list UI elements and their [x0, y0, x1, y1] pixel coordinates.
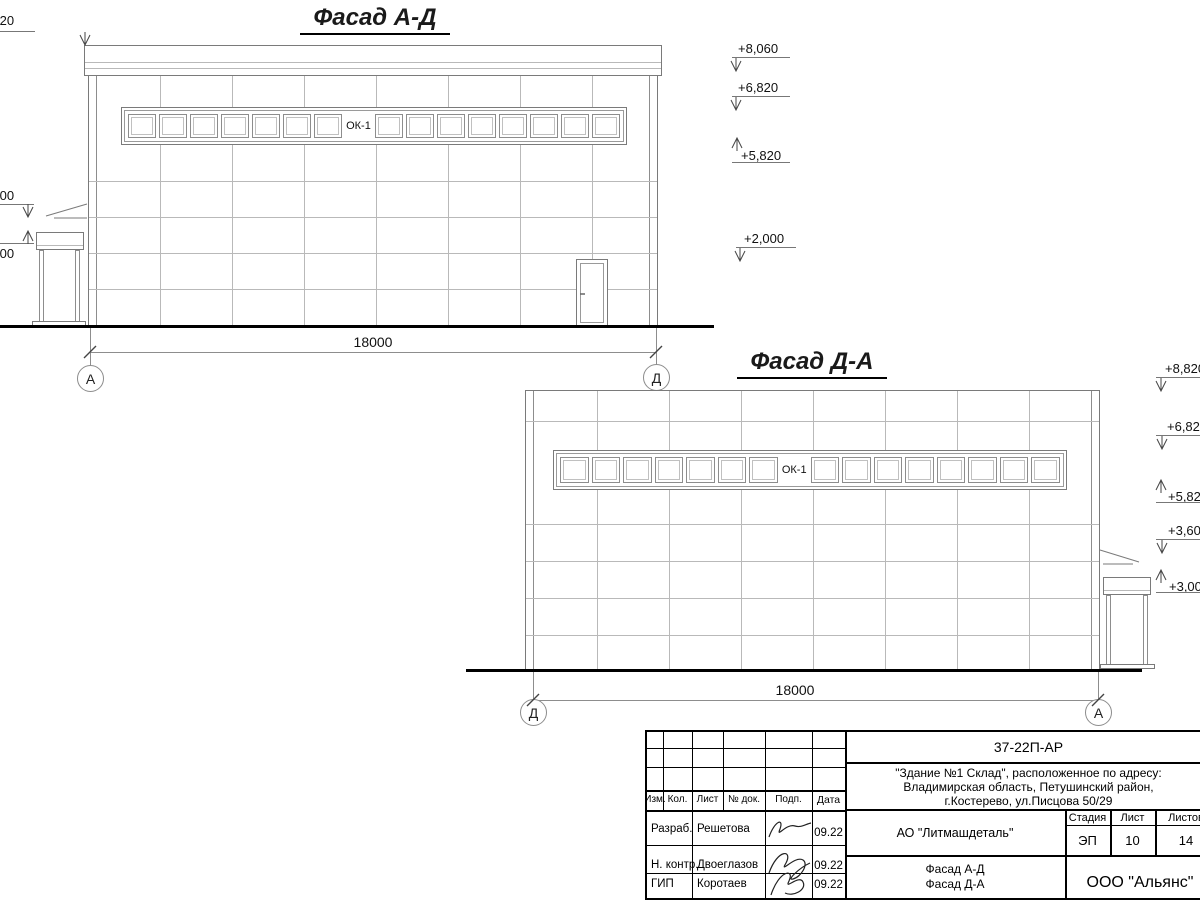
- elevation-mark-da-0: +8,820: [1165, 361, 1200, 376]
- sheet-value: 10: [1110, 833, 1155, 848]
- window-cell: [686, 457, 715, 483]
- col-kol: Кол.: [664, 794, 691, 805]
- title-block: Изм. Кол. Лист № док. Подп. Дата Разраб.…: [645, 730, 1200, 900]
- window-cell: [561, 114, 589, 138]
- elevation-mark-da-3: +3,600: [1168, 523, 1200, 538]
- window-band-ok1: ОК-1: [553, 450, 1067, 490]
- drawing-sheet: Фасад А-Д: [0, 0, 1200, 900]
- elevation-mark-right-0: +8,060: [738, 41, 778, 56]
- parapet-band: [84, 45, 662, 76]
- window-cell: [190, 114, 218, 138]
- window-mark-label: ОК-1: [781, 457, 808, 483]
- window-cell: [314, 114, 342, 138]
- dimension-value: 18000: [755, 682, 835, 698]
- sheet-name-line2: Фасад Д-А: [845, 877, 1065, 891]
- window-cell: [375, 114, 403, 138]
- window-cell: [937, 457, 966, 483]
- window-cell: [159, 114, 187, 138]
- role-gip: ГИП: [651, 878, 674, 890]
- window-cell: [623, 457, 652, 483]
- client-name: АО "Литмашдеталь": [845, 826, 1065, 840]
- window-cell: [1031, 457, 1060, 483]
- elevation-mark-da-1: +6,820: [1167, 419, 1200, 434]
- object-address-line2: Владимирская область, Петушинский район,: [845, 780, 1200, 794]
- elevation-mark-right-3: +2,000: [744, 231, 784, 246]
- elevation-mark-left-1: +3,600: [0, 188, 14, 203]
- role-developer: Разраб.: [651, 823, 692, 835]
- window-cell: [749, 457, 778, 483]
- window-cell: [499, 114, 527, 138]
- window-cell: [874, 457, 903, 483]
- window-cell: [718, 457, 747, 483]
- elevation-mark-left-0: +8,820: [0, 13, 14, 28]
- window-cell: [406, 114, 434, 138]
- sheet-name-line1: Фасад А-Д: [845, 862, 1065, 876]
- window-cell: [842, 457, 871, 483]
- facade-da-elevation: ОК-1: [525, 390, 1100, 672]
- window-cell: [1000, 457, 1029, 483]
- window-cell: [592, 457, 621, 483]
- organization-name: ООО "Альянс": [1065, 874, 1200, 892]
- facade-ad-title: Фасад А-Д: [300, 4, 450, 35]
- elevation-mark-right-2: +5,820: [741, 148, 781, 163]
- dimension-value: 18000: [333, 334, 413, 350]
- total-sheets-label: Листов: [1155, 812, 1200, 824]
- col-list: Лист: [693, 794, 722, 805]
- facade-ad-elevation: ОК-1: [88, 45, 658, 327]
- window-band-ok1: ОК-1: [121, 107, 627, 145]
- window-cell: [128, 114, 156, 138]
- window-cell: [655, 457, 684, 483]
- window-cell: [468, 114, 496, 138]
- document-number: 37-22П-АР: [845, 739, 1200, 755]
- col-podp: Подп.: [766, 794, 811, 805]
- date-developer: 09.22: [813, 827, 844, 839]
- window-cell: [283, 114, 311, 138]
- object-address-line3: г.Костерево, ул.Писцова 50/29: [845, 794, 1200, 808]
- date-gip: 09.22: [813, 879, 844, 891]
- name-norm-control: Двоеглазов: [697, 859, 758, 871]
- window-cell: [437, 114, 465, 138]
- stage-label: Стадия: [1065, 812, 1110, 824]
- elevation-mark-left-2: +3,000: [0, 246, 14, 261]
- window-cell: [592, 114, 620, 138]
- stage-value: ЭП: [1065, 833, 1110, 848]
- window-cell: [905, 457, 934, 483]
- total-sheets-value: 14: [1155, 833, 1200, 848]
- entrance-door: [576, 259, 608, 327]
- col-data: Дата: [813, 794, 844, 806]
- object-address-line1: "Здание №1 Склад", расположенное по адре…: [845, 766, 1200, 780]
- ground-line: [0, 325, 714, 328]
- window-mark-label: ОК-1: [345, 114, 371, 138]
- window-cell: [221, 114, 249, 138]
- window-cell: [560, 457, 589, 483]
- axis-bubble-a: А: [1085, 699, 1112, 726]
- window-cell: [968, 457, 997, 483]
- role-norm-control: Н. контр.: [651, 859, 698, 871]
- window-cell: [252, 114, 280, 138]
- elevation-mark-right-1: +6,820: [738, 80, 778, 95]
- axis-bubble-d: Д: [643, 364, 670, 391]
- col-ndok: № док.: [724, 794, 764, 805]
- axis-bubble-d: Д: [520, 699, 547, 726]
- facade-da-title: Фасад Д-А: [737, 348, 887, 379]
- ground-line: [466, 669, 1142, 672]
- window-cell: [530, 114, 558, 138]
- sheet-label: Лист: [1110, 812, 1155, 824]
- name-developer: Решетова: [697, 823, 750, 835]
- window-cell: [811, 457, 840, 483]
- date-norm-control: 09.22: [813, 860, 844, 872]
- axis-bubble-a: А: [77, 365, 104, 392]
- name-gip: Коротаев: [697, 878, 747, 890]
